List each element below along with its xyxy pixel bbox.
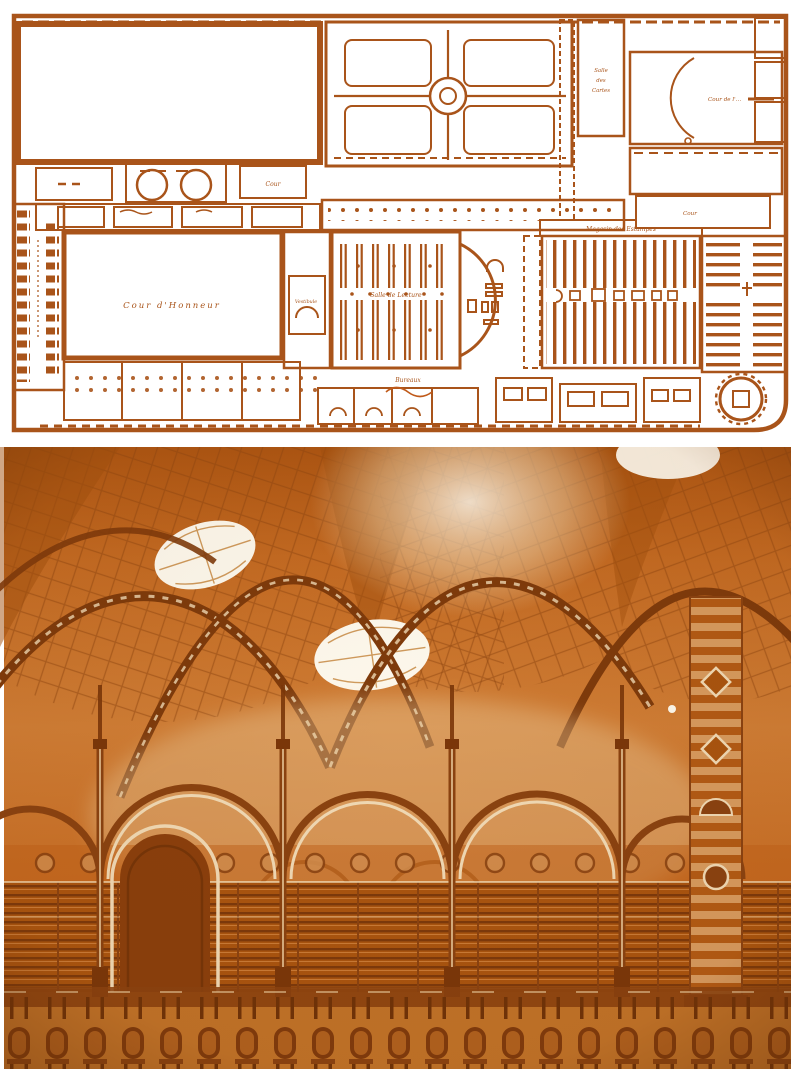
south-rooms xyxy=(318,378,700,424)
blank-block xyxy=(18,24,320,162)
plan-label-bureaux: Bureaux xyxy=(394,377,421,384)
stack-corridor xyxy=(524,236,540,368)
photo-vignette xyxy=(4,447,791,1069)
garden-fountain xyxy=(430,78,466,114)
scanned-figure-page: Cour Cour d'Honneur Vestibule xyxy=(0,0,791,1069)
plan-label-vestibule: Vestibule xyxy=(295,299,317,305)
garden-courtyard xyxy=(326,22,572,166)
plan-label-cour-ne: Cour de l'… xyxy=(708,97,742,103)
plan-label-salle-lecture: Salle de Lecture xyxy=(370,292,422,299)
plan-label-cour-nw: Cour xyxy=(266,181,282,188)
plan-label-salle-cartes-3: Cartes xyxy=(592,88,610,94)
plan-label-cour-honneur: Cour d'Honneur xyxy=(123,301,221,311)
gallery-band-west xyxy=(36,204,320,230)
plan-label-cour-e: Cour xyxy=(683,211,697,217)
south-west-rooms xyxy=(64,362,318,420)
cour-honneur: Cour d'Honneur xyxy=(64,232,282,358)
west-wing-galleries xyxy=(14,204,64,390)
ne-room-apse xyxy=(671,58,694,138)
vestibule: Vestibule xyxy=(284,232,330,368)
reading-room: Salle de Lecture xyxy=(332,232,503,368)
plan-label-salle-cartes-1: Salle xyxy=(594,68,608,74)
book-stacks xyxy=(542,236,786,372)
floor-plan: Cour Cour d'Honneur Vestibule xyxy=(0,0,791,447)
round-room xyxy=(716,374,766,424)
plan-label-salle-cartes-2: des xyxy=(596,78,606,84)
reading-room-photo xyxy=(0,447,791,1069)
northeast-block: Salle des Cartes Cour de l'… Cour xyxy=(560,18,785,228)
